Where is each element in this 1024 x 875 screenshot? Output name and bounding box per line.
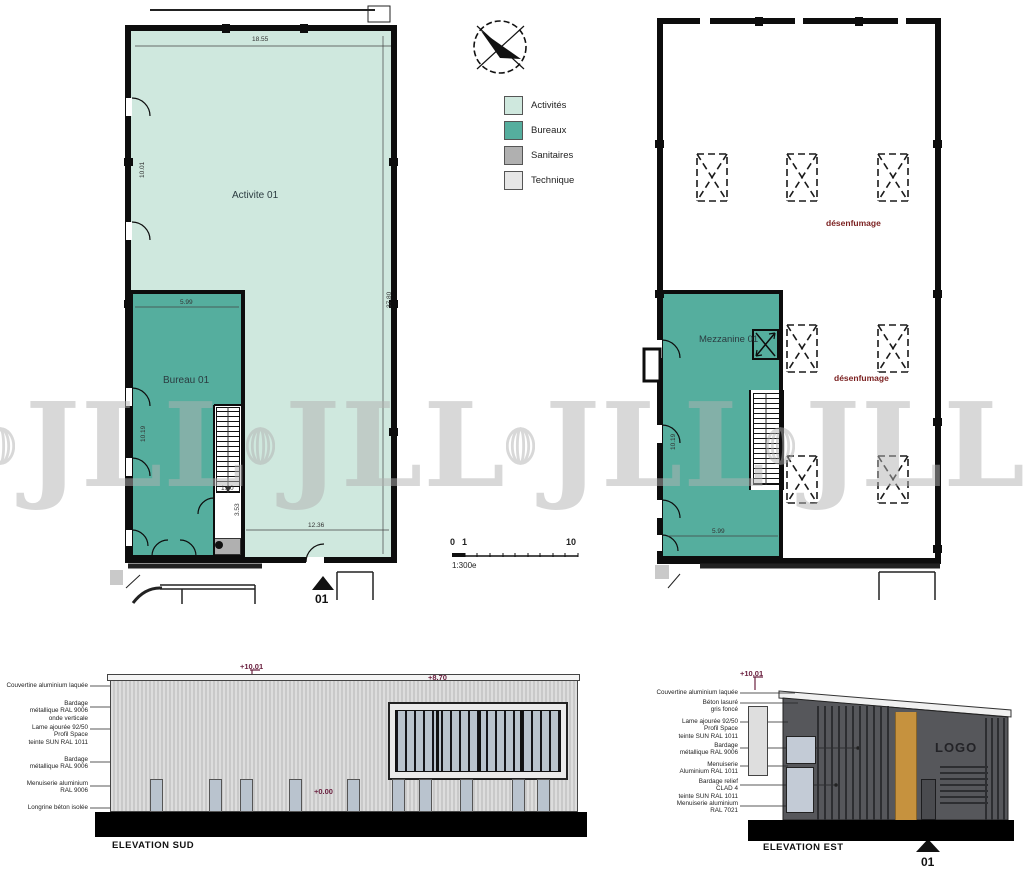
- est-annotation-7: Menuiserie aluminium RAL 7021: [653, 800, 738, 815]
- sud-door: [419, 779, 432, 812]
- est-right-edge-louvers: [985, 718, 1008, 820]
- est-annotation-4: Bardage métallique RAL 9006: [653, 742, 738, 757]
- est-door: [921, 779, 936, 820]
- est-marker-label: 01: [921, 855, 934, 869]
- est-side-block: [748, 706, 768, 776]
- est-title: ELEVATION EST: [763, 842, 844, 853]
- legend-label: Bureaux: [531, 125, 566, 136]
- sud-annotation-6: Longrine béton isolée: [3, 804, 88, 811]
- legend-label: Sanitaires: [531, 150, 573, 161]
- mezz-dim-width: 5.99: [712, 528, 725, 535]
- sud-annotation-4: Bardage métallique RAL 9006: [3, 756, 88, 771]
- sud-mullion: [520, 710, 523, 772]
- bureau-double-door: [152, 540, 196, 556]
- dim-right: 37.80: [386, 292, 393, 308]
- smoke-vents: [697, 154, 908, 503]
- sud-door: [460, 779, 473, 812]
- est-glazed-door: [786, 767, 814, 813]
- bureau-wall: [131, 292, 243, 557]
- est-annotation-5: Menuiserie Aluminium RAL 1011: [653, 761, 738, 776]
- sud-door: [289, 779, 302, 812]
- dim-left: 10.01: [139, 162, 146, 178]
- sud-door: [512, 779, 525, 812]
- entrance-door: [306, 544, 324, 563]
- legend-item-sanitaires: Sanitaires: [504, 146, 573, 165]
- legend-swatch-bureaux: [504, 121, 523, 140]
- est-annotation-6: Bardage relief CLAD 4 teinte SUN RAL 101…: [653, 778, 738, 800]
- scale-zero: 0: [450, 537, 455, 547]
- est-logo-text: LOGO: [935, 740, 977, 755]
- legend-label: Technique: [531, 175, 574, 186]
- ground-marker-label: 01: [315, 592, 328, 606]
- est-horizontal-louvers: [940, 764, 988, 804]
- scale-ratio: 1:300e: [452, 561, 476, 570]
- est-level-marks: [753, 677, 763, 690]
- legend-swatch-activites: [504, 96, 523, 115]
- smoke-label-2: désenfumage: [834, 373, 889, 383]
- sud-mullion: [478, 710, 481, 772]
- ground-marker-triangle: [312, 576, 334, 590]
- sud-level-ground: +0.00: [314, 787, 333, 796]
- sud-annotation-5: Menuiserie aluminium RAL 9006: [3, 780, 88, 795]
- est-window-upper: [786, 736, 816, 764]
- dim-top: 18.55: [252, 36, 268, 43]
- mezz-dim-depth: 10.19: [670, 434, 677, 450]
- est-level-top: +10.01: [740, 669, 763, 678]
- legend-item-bureaux: Bureaux: [504, 121, 566, 140]
- corridor-door: [198, 498, 223, 549]
- legend-label: Activités: [531, 100, 566, 111]
- est-annotation-3: Lame ajourée 92/50 Profil Space teinte S…: [653, 718, 738, 740]
- sud-level-mid: +8.70: [428, 673, 447, 682]
- sud-door: [209, 779, 222, 812]
- legend-swatch-sanitaires: [504, 146, 523, 165]
- sud-door: [392, 779, 405, 812]
- sud-door: [347, 779, 360, 812]
- est-annotation-2: Béton lasuré gris foncé: [653, 699, 738, 714]
- legend-item-technique: Technique: [504, 171, 574, 190]
- bureau-room-label: Bureau 01: [163, 375, 209, 386]
- est-vertical-louvers: [817, 706, 894, 820]
- compass-icon: [474, 21, 526, 73]
- est-plinth: [748, 820, 1014, 841]
- sud-annotation-2: Bardage métallique RAL 9006 onde vertica…: [3, 700, 88, 722]
- scale-one: 1: [462, 537, 467, 547]
- dim-bureau-depth: 10.19: [140, 426, 147, 442]
- sud-mullion: [436, 710, 439, 772]
- mezz-airlock: [644, 349, 660, 381]
- smoke-label-1: désenfumage: [826, 218, 881, 228]
- sud-plinth: [95, 812, 587, 837]
- legend-swatch-technique: [504, 171, 523, 190]
- mezz-column-marks: [655, 17, 942, 553]
- mezz-room-wall: [661, 292, 781, 558]
- legend-item-activites: Activités: [504, 96, 566, 115]
- dim-bottom: 12.36: [308, 522, 324, 529]
- sud-annotation-3: Lame ajourée 92/50 Profil Space teinte S…: [3, 724, 88, 746]
- architectural-drawing-sheet: Activités Bureaux Sanitaires Technique A…: [0, 0, 1024, 875]
- est-accent-stripe: [895, 712, 917, 820]
- dim-corridor: 3.53: [234, 503, 241, 516]
- mezzanine-room-label: Mezzanine 01: [699, 334, 758, 345]
- dim-bureau-width: 5.99: [180, 299, 193, 306]
- sud-title: ELEVATION SUD: [112, 840, 194, 851]
- mezz-exterior-works: [655, 565, 940, 600]
- sud-door: [240, 779, 253, 812]
- scale-bar: [452, 553, 578, 557]
- activity-room-label: Activite 01: [232, 190, 278, 201]
- sud-level-top: +10.01: [240, 662, 263, 671]
- est-annotation-1: Couvertine aluminium laquée: [653, 689, 738, 696]
- sud-door: [537, 779, 550, 812]
- dim-stair: 1.80: [221, 485, 234, 492]
- sud-annotation-1: Couvertine aluminium laquée: [3, 682, 88, 689]
- sud-door: [150, 779, 163, 812]
- ground-exterior-works: [110, 566, 373, 604]
- ground-top-exterior-box: [368, 6, 390, 22]
- scale-ten: 10: [566, 537, 576, 547]
